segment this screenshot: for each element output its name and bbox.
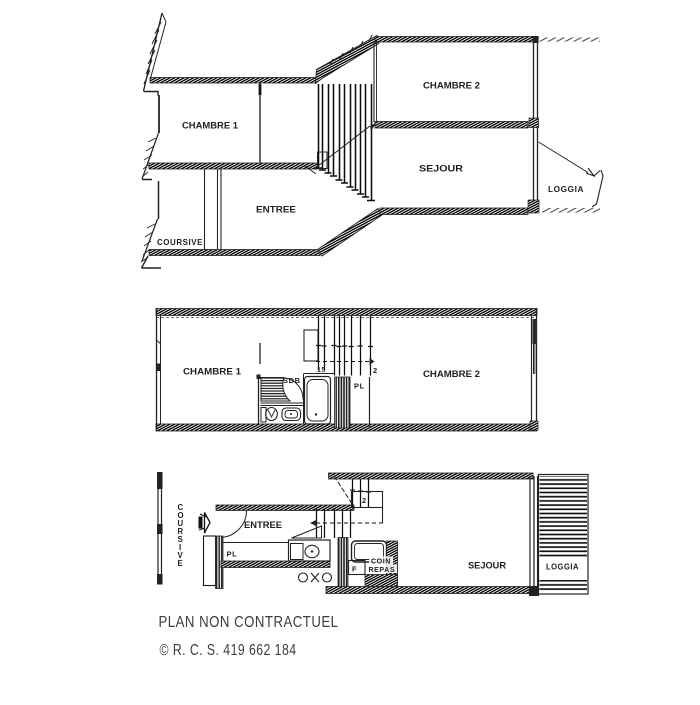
svg-text:PL: PL (354, 382, 365, 391)
svg-text:E: E (178, 559, 184, 568)
svg-text:CHAMBRE 2: CHAMBRE 2 (423, 369, 480, 380)
svg-text:F: F (352, 565, 357, 574)
svg-text:CHAMBRE 1: CHAMBRE 1 (182, 121, 239, 132)
svg-text:LOGGIA: LOGGIA (546, 562, 579, 572)
svg-text:PLAN NON CONTRACTUEL: PLAN NON CONTRACTUEL (159, 614, 339, 631)
svg-text:CHAMBRE 1: CHAMBRE 1 (183, 367, 242, 378)
svg-text:LOGGIA: LOGGIA (548, 184, 584, 194)
svg-text:COIN: COIN (371, 559, 391, 566)
svg-text:CHAMBRE 2: CHAMBRE 2 (423, 81, 480, 92)
svg-text:© R. C. S. 419 662 184: © R. C. S. 419 662 184 (160, 642, 297, 659)
svg-text:ENTREE: ENTREE (256, 205, 296, 216)
svg-text:2: 2 (373, 366, 378, 375)
svg-text:2: 2 (362, 496, 367, 505)
svg-text:REPAS: REPAS (369, 567, 396, 574)
svg-text:COURSIVE: COURSIVE (157, 237, 203, 247)
svg-text:SEJOUR: SEJOUR (468, 561, 506, 572)
svg-text:SEJOUR: SEJOUR (419, 164, 463, 175)
svg-text:ENTREE: ENTREE (244, 520, 282, 531)
svg-text:PL: PL (227, 550, 238, 559)
